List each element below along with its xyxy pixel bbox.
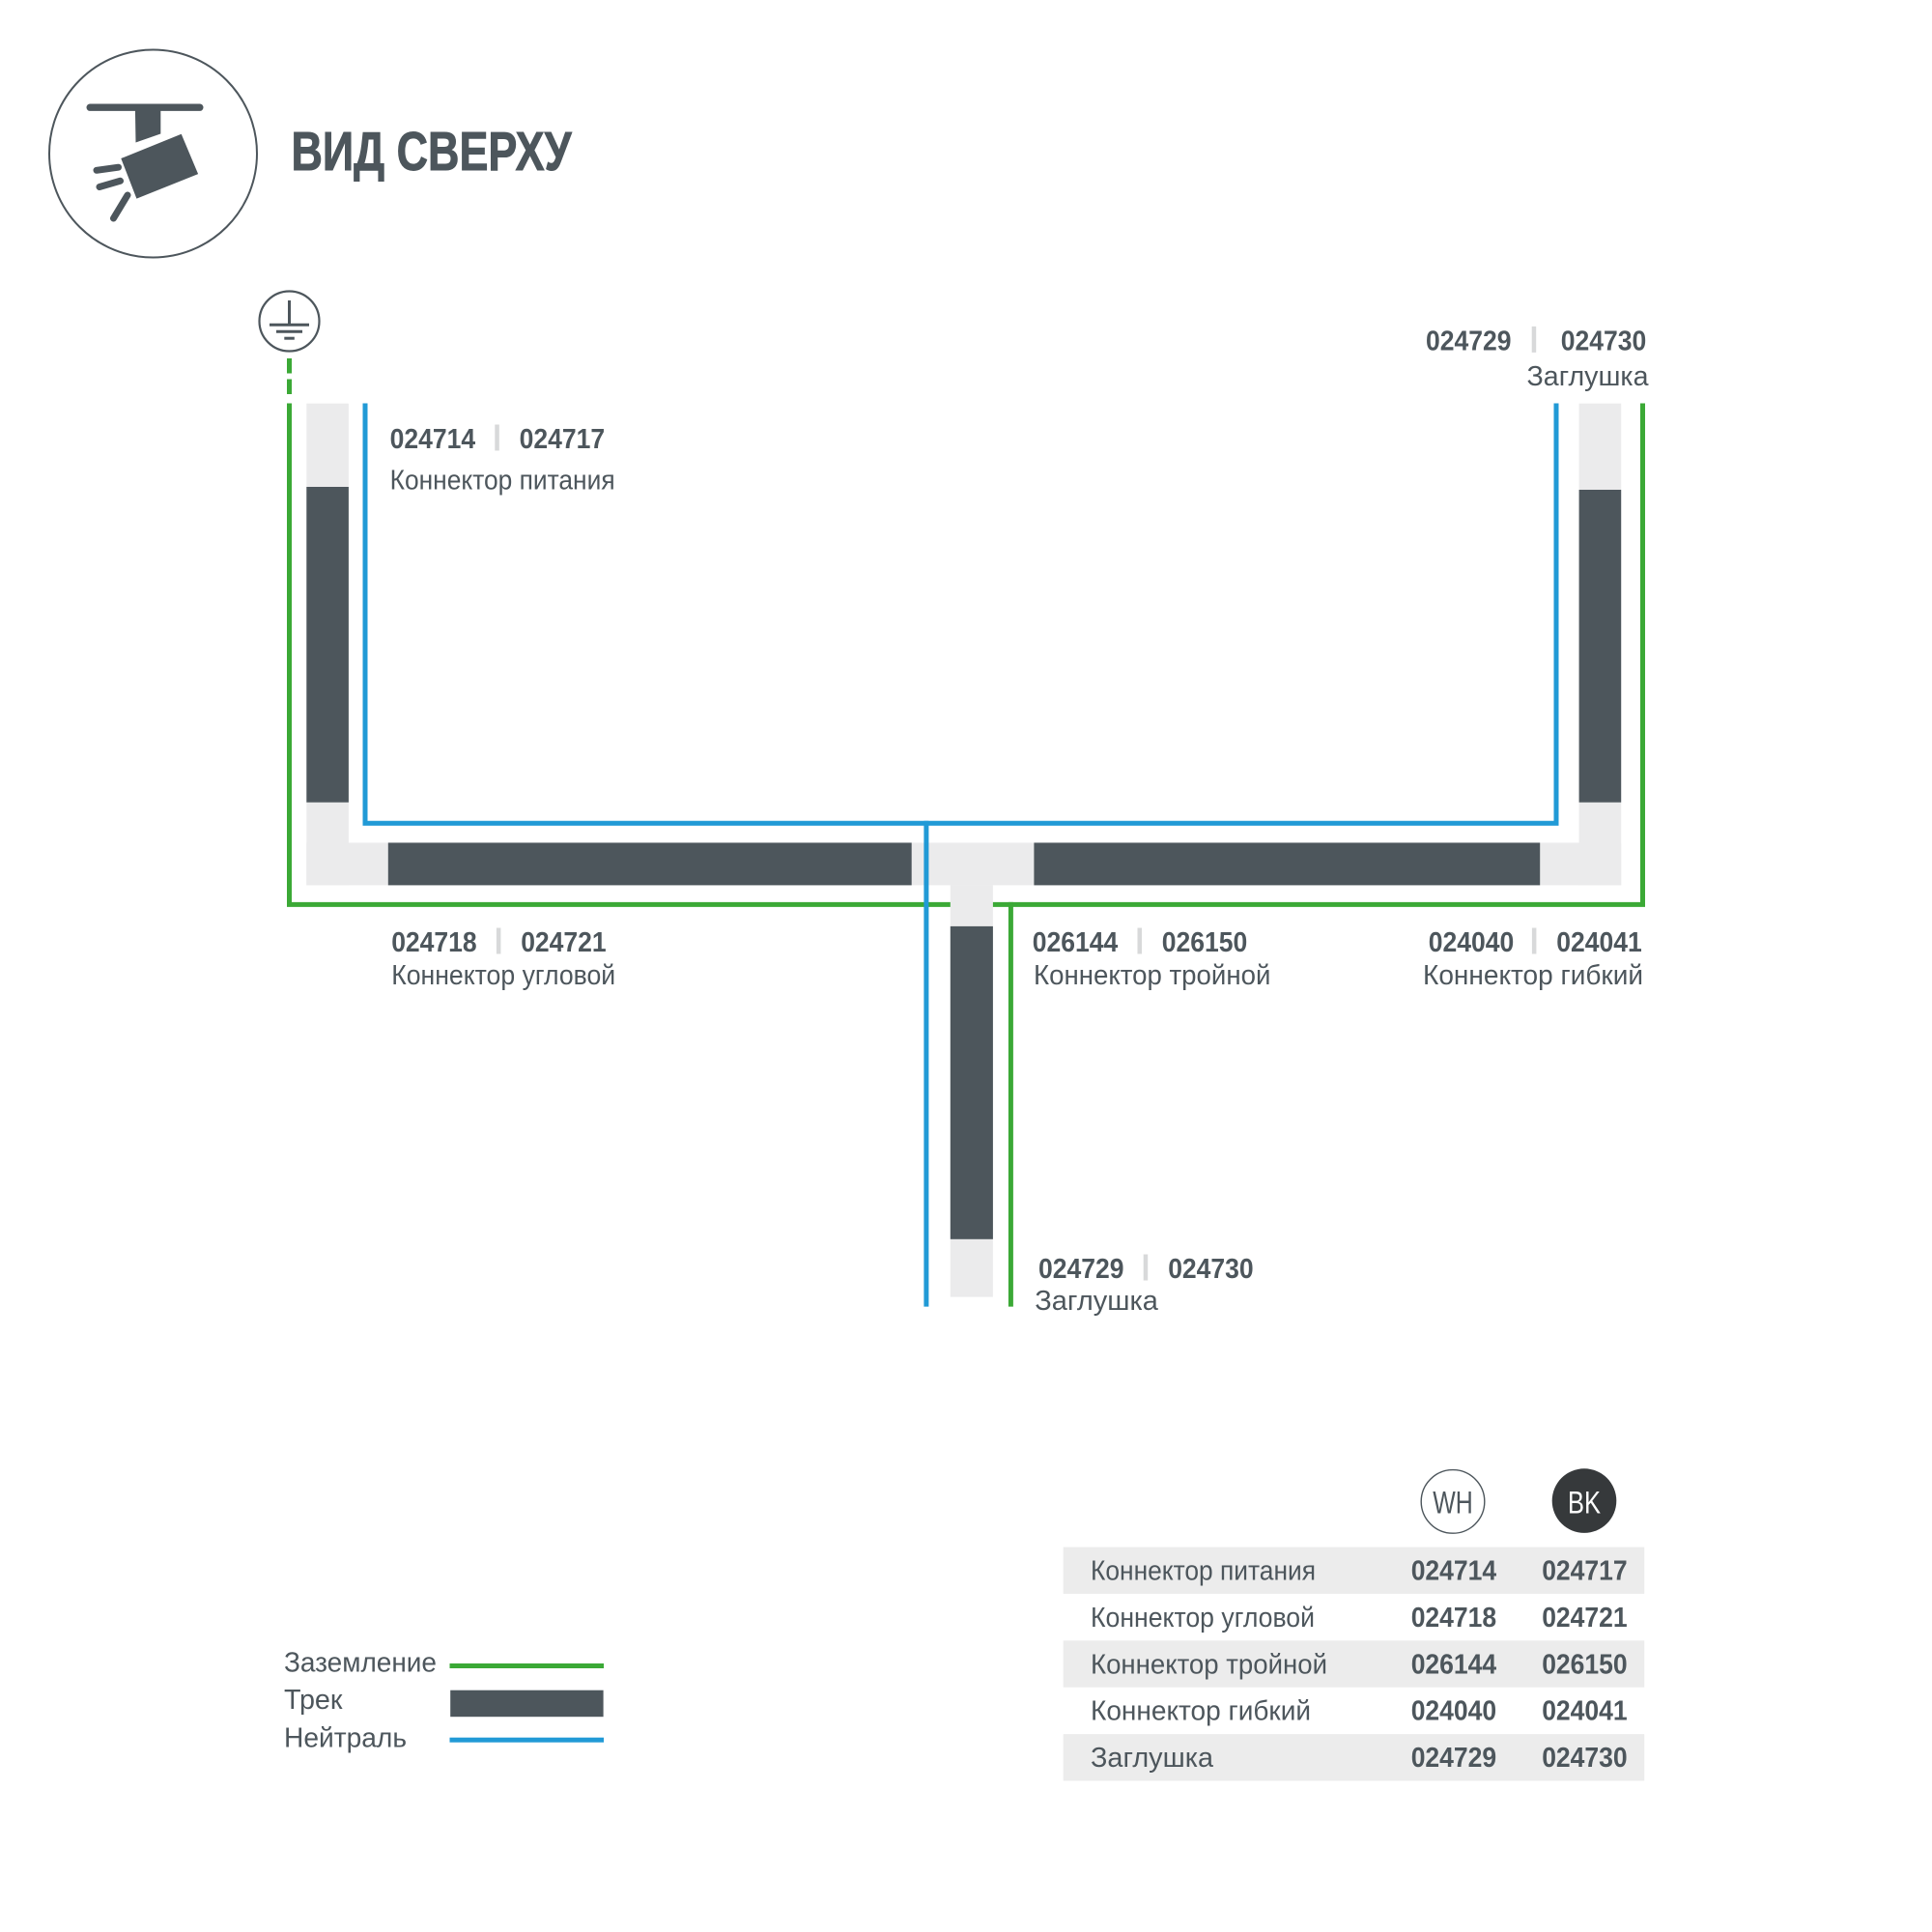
svg-text:024717: 024717 (520, 424, 606, 455)
svg-text:024041: 024041 (1542, 1696, 1628, 1727)
svg-text:Коннектор гибкий: Коннектор гибкий (1423, 960, 1643, 991)
svg-text:024717: 024717 (1542, 1556, 1628, 1587)
svg-text:Коннектор угловой: Коннектор угловой (1091, 1603, 1315, 1634)
svg-text:024721: 024721 (521, 927, 607, 958)
svg-text:024721: 024721 (1542, 1603, 1628, 1634)
svg-text:Коннектор питания: Коннектор питания (390, 466, 615, 497)
svg-text:024714: 024714 (1411, 1556, 1497, 1587)
svg-text:024040: 024040 (1429, 927, 1515, 958)
svg-text:Коннектор угловой: Коннектор угловой (391, 960, 615, 991)
svg-text:Коннектор гибкий: Коннектор гибкий (1091, 1696, 1311, 1727)
svg-text:024730: 024730 (1542, 1743, 1628, 1774)
svg-text:024718: 024718 (391, 927, 477, 958)
svg-text:Заглушка: Заглушка (1091, 1743, 1214, 1774)
svg-text:Коннектор тройной: Коннектор тройной (1091, 1649, 1327, 1680)
svg-text:WH: WH (1433, 1486, 1473, 1520)
svg-text:024729: 024729 (1426, 326, 1512, 356)
svg-text:024730: 024730 (1168, 1254, 1254, 1285)
svg-text:026144: 026144 (1033, 927, 1119, 958)
svg-text:Нейтраль: Нейтраль (284, 1722, 407, 1753)
svg-text:Заземление: Заземление (284, 1647, 437, 1678)
svg-text:ВИД СВЕРХУ: ВИД СВЕРХУ (292, 121, 572, 183)
svg-text:024730: 024730 (1561, 326, 1647, 356)
svg-text:BK: BK (1568, 1486, 1601, 1520)
svg-text:026150: 026150 (1162, 927, 1248, 958)
svg-text:024729: 024729 (1411, 1743, 1497, 1774)
svg-text:Коннектор питания: Коннектор питания (1091, 1556, 1316, 1587)
svg-text:024041: 024041 (1556, 927, 1642, 958)
svg-text:024729: 024729 (1038, 1254, 1124, 1285)
svg-text:Трек: Трек (284, 1685, 343, 1716)
svg-text:024040: 024040 (1411, 1696, 1497, 1727)
svg-text:024714: 024714 (390, 424, 476, 455)
svg-text:Коннектор тройной: Коннектор тройной (1034, 960, 1270, 991)
svg-text:026144: 026144 (1411, 1649, 1497, 1680)
svg-text:Заглушка: Заглушка (1035, 1286, 1158, 1317)
svg-text:Заглушка: Заглушка (1527, 361, 1650, 392)
svg-text:024718: 024718 (1411, 1603, 1497, 1634)
svg-text:026150: 026150 (1542, 1649, 1628, 1680)
